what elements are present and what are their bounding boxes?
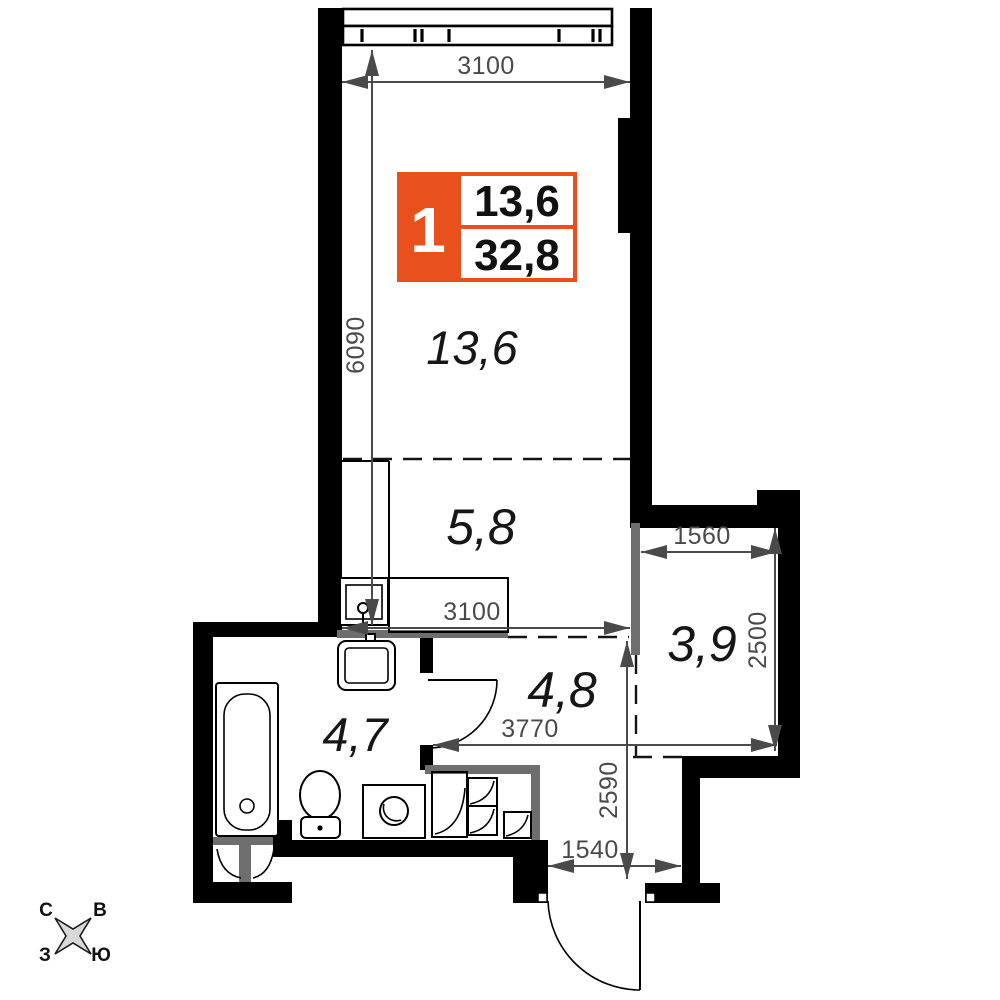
floor-plan-drawing: 3100 6090 3100 1560 2500 3770 2590 (0, 0, 1000, 1000)
dimension-wardrobe-height: 2500 (744, 528, 782, 751)
dim-hall-height-label: 2590 (595, 761, 623, 819)
compass-north: С (39, 900, 53, 921)
compass-rose: С В З Ю (39, 900, 111, 966)
badge-rooms-count: 1 (410, 194, 446, 266)
compass-star-icon (55, 918, 91, 954)
door-jamb (538, 893, 547, 902)
floor-plan-page: 3100 6090 3100 1560 2500 3770 2590 (0, 0, 1000, 1000)
bathtub-icon (216, 683, 278, 836)
compass-south: Ю (91, 945, 111, 966)
window-icon (342, 8, 630, 46)
dimension-entrance-width: 1540 (548, 836, 681, 873)
room-label-living: 13,6 (426, 321, 518, 374)
bathroom-door-icon (428, 680, 497, 748)
toilet-icon (300, 771, 340, 838)
door-jamb (646, 893, 655, 902)
dim-hall-width-label: 3770 (501, 715, 559, 743)
wardrobe-cabinets-icon (432, 772, 531, 838)
kitchen-sink-icon (340, 578, 388, 626)
dim-wardrobe-width-label: 1560 (673, 522, 731, 550)
dim-wardrobe-height-label: 2500 (744, 611, 772, 669)
room-label-hallway: 4,8 (527, 662, 597, 718)
dim-living-height-label: 6090 (342, 316, 370, 374)
room-label-bathroom: 4,7 (322, 708, 389, 761)
bathroom-sink-icon (338, 634, 395, 690)
dimension-living-height: 6090 (342, 50, 379, 625)
compass-west: З (39, 945, 51, 966)
dim-entrance-width-label: 1540 (561, 836, 619, 864)
room-label-wardrobe: 3,9 (667, 616, 737, 672)
compass-east: В (93, 900, 107, 921)
entrance-door-icon (548, 901, 640, 990)
dim-kitchen-width-label: 3100 (443, 598, 501, 626)
dim-top-width-label: 3100 (457, 52, 515, 80)
apartment-badge: 1 13,6 32,8 (397, 172, 577, 282)
dimension-top-width: 3100 (342, 52, 630, 89)
room-label-kitchen: 5,8 (446, 499, 516, 555)
washing-machine-icon (363, 785, 425, 838)
badge-total-area: 32,8 (474, 231, 560, 280)
badge-living-area: 13,6 (474, 177, 560, 226)
